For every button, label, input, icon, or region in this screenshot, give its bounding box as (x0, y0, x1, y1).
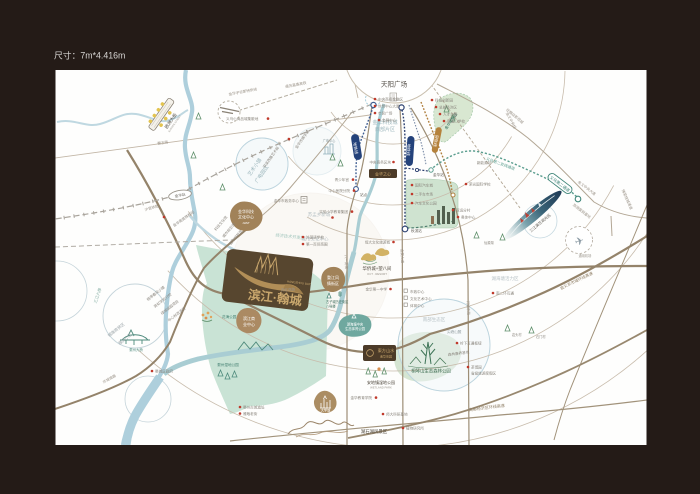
svg-text:省级旅游度假区: 省级旅游度假区 (471, 371, 497, 376)
svg-text:安地镇湿地公园: 安地镇湿地公园 (367, 379, 395, 385)
svg-text:会展中心: 会展中心 (382, 118, 397, 123)
svg-text:八咏楼: 八咏楼 (326, 304, 336, 309)
svg-text:义乌小商品城集散地: 义乌小商品城集散地 (226, 116, 259, 121)
svg-text:秋滨站: 秋滨站 (411, 228, 422, 233)
svg-text:婺州湿地公园: 婺州湿地公园 (217, 362, 239, 367)
svg-text:荣光国际学校: 荣光国际学校 (469, 182, 491, 187)
svg-text:总部经济区: 总部经济区 (439, 105, 457, 110)
svg-text:婺州古城遗址: 婺州古城遗址 (243, 405, 265, 410)
svg-text:東方山水: 東方山水 (378, 347, 396, 354)
svg-text:金华科技: 金华科技 (238, 208, 254, 214)
svg-text:广电中心: 广电中心 (323, 138, 337, 143)
svg-text:科技创新园: 科技创新园 (435, 98, 453, 103)
svg-text:桐琴山生态森林公园: 桐琴山生态森林公园 (411, 368, 451, 375)
svg-text:OCT · RESORT: OCT · RESORT (367, 272, 387, 276)
svg-text:湖石湖风景区: 湖石湖风景区 (361, 428, 388, 435)
svg-text:国际汽车城: 国际汽车城 (415, 183, 433, 188)
svg-text:青少年宫: 青少年宫 (335, 177, 350, 182)
svg-text:实验小学教育集团: 实验小学教育集团 (319, 209, 348, 214)
svg-text:湖海塘中央: 湖海塘中央 (347, 322, 364, 327)
svg-text:情街区: 情街区 (327, 280, 339, 286)
svg-text:植物研究所: 植物研究所 (406, 426, 424, 431)
svg-text:世贸中心大厦: 世贸中心大厦 (378, 104, 400, 109)
svg-text:尖峰山麓: 尖峰山麓 (447, 329, 462, 334)
svg-text:金华站: 金华站 (433, 172, 444, 177)
svg-text:岩头村: 岩头村 (512, 332, 522, 337)
svg-text:金华乐园: 金华乐园 (380, 354, 392, 359)
svg-text:汽车文化公园: 汽车文化公园 (415, 201, 437, 206)
svg-text:南二环互通: 南二环互通 (496, 291, 514, 296)
svg-text:生态体育公园: 生态体育公园 (345, 326, 365, 331)
svg-text:华侨城+望八间: 华侨城+望八间 (363, 265, 392, 272)
svg-text:亚运分村: 亚运分村 (456, 208, 471, 213)
svg-text:市民广场: 市民广场 (378, 111, 393, 116)
svg-text:金华市政务中心: 金华市政务中心 (274, 198, 300, 203)
svg-text:湖海塘活力区: 湖海塘活力区 (492, 275, 519, 282)
svg-text:师大科研基地: 师大科研基地 (386, 412, 408, 417)
svg-text:JHST: JHST (242, 221, 250, 225)
svg-text:金华第一中学: 金华第一中学 (365, 287, 387, 292)
svg-text:业中心: 业中心 (243, 321, 255, 327)
svg-text:宾虹西路: 宾虹西路 (281, 287, 296, 293)
svg-text:中央商务金融区: 中央商务金融区 (378, 97, 404, 102)
svg-text:花海公园: 花海公园 (222, 314, 237, 319)
svg-text:市政中心: 市政中心 (410, 289, 425, 294)
svg-text:金华之心: 金华之心 (375, 171, 391, 177)
svg-text:南部生态区: 南部生态区 (423, 316, 446, 323)
svg-text:滨江商: 滨江商 (243, 315, 255, 321)
svg-text:人才公寓: 人才公寓 (443, 112, 458, 117)
svg-text:中心医院分院: 中心医院分院 (328, 188, 350, 193)
svg-text:二手车市场: 二手车市场 (415, 192, 433, 197)
svg-text:站点: 站点 (360, 192, 368, 197)
svg-text:大学城: 大学城 (321, 408, 331, 413)
svg-text:文化中心: 文化中心 (238, 214, 254, 220)
svg-text:体育中心: 体育中心 (410, 303, 425, 308)
svg-text:天阳广场: 天阳广场 (381, 80, 408, 89)
svg-text:西部片区: 西部片区 (375, 126, 395, 133)
svg-text:第一百货商圈: 第一百货商圈 (306, 242, 328, 247)
svg-text:新能源站: 新能源站 (477, 160, 492, 165)
svg-text:八一南街: 八一南街 (344, 255, 350, 270)
svg-text:WETLAND PARK: WETLAND PARK (370, 386, 392, 390)
svg-text:婺州大桥: 婺州大桥 (129, 347, 143, 352)
svg-text:仙源湖: 仙源湖 (484, 240, 494, 245)
svg-text:婺城区政府: 婺城区政府 (155, 369, 173, 374)
svg-text:环城东路: 环城东路 (466, 301, 472, 316)
svg-text:奥体中心: 奥体中心 (461, 215, 476, 220)
svg-text:婺江风: 婺江风 (327, 274, 339, 280)
svg-text:尺寸：7m*4.416m: 尺寸：7m*4.416m (54, 50, 125, 61)
svg-text:双溪口学校: 双溪口学校 (447, 119, 465, 124)
svg-text:金婺大道: 金婺大道 (400, 249, 406, 264)
svg-text:茶博园: 茶博园 (471, 365, 482, 370)
svg-text:中央商务区块: 中央商务区块 (369, 160, 391, 165)
svg-text:地铁线: 地铁线 (406, 144, 413, 156)
svg-text:恒大文化旅游城: 恒大文化旅游城 (365, 240, 391, 245)
svg-text:通用机场: 通用机场 (579, 253, 592, 258)
svg-text:外国语学校: 外国语学校 (306, 235, 324, 240)
svg-text:古子城历史街区: 古子城历史街区 (326, 299, 349, 304)
svg-text:雅畈老街: 雅畈老街 (243, 411, 258, 416)
svg-text:岭下互通枢纽: 岭下互通枢纽 (460, 341, 482, 346)
svg-text:金华教育学院: 金华教育学院 (350, 395, 372, 400)
svg-text:文化艺术中心: 文化艺术中心 (410, 296, 432, 301)
svg-text:石门村: 石门村 (536, 334, 546, 339)
